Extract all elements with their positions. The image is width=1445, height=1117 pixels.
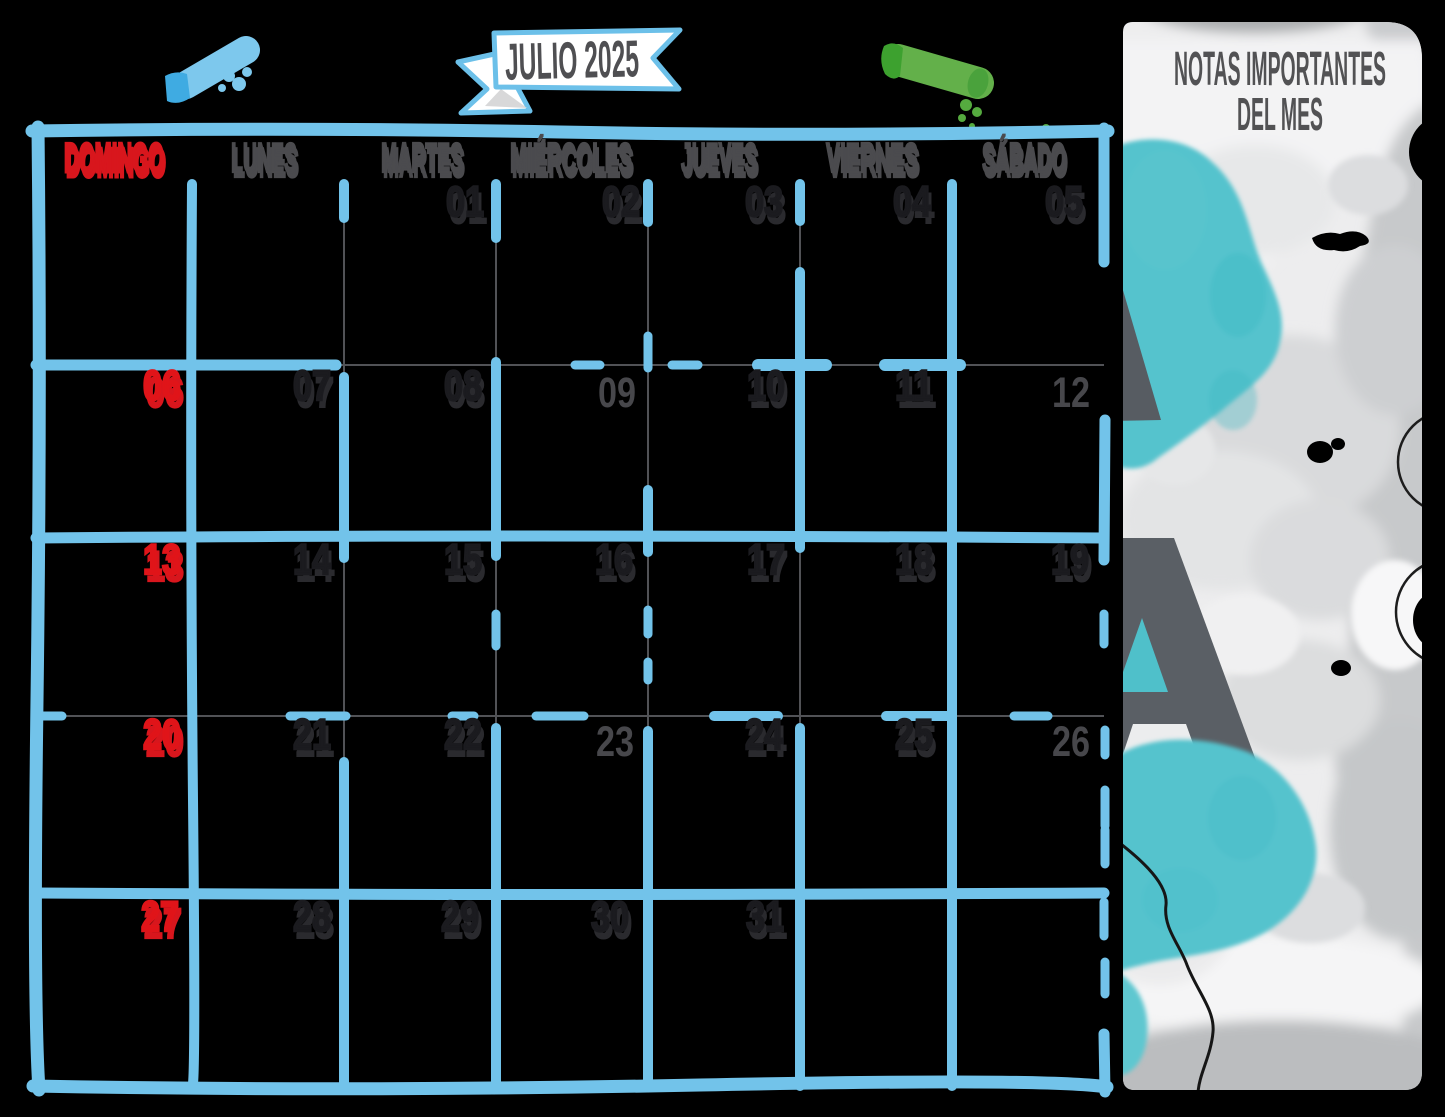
svg-text:VIERNES: VIERNES xyxy=(826,134,918,181)
svg-text:09: 09 xyxy=(598,369,636,417)
svg-text:13: 13 xyxy=(143,536,181,584)
svg-text:28: 28 xyxy=(293,893,331,941)
svg-text:21: 21 xyxy=(293,711,331,759)
svg-text:06: 06 xyxy=(143,362,181,410)
svg-text:DEL MES: DEL MES xyxy=(1237,88,1323,140)
svg-text:17: 17 xyxy=(747,536,785,584)
svg-text:15: 15 xyxy=(444,536,482,584)
svg-text:JULIO 2025: JULIO 2025 xyxy=(504,30,639,91)
svg-text:07: 07 xyxy=(293,362,331,410)
svg-text:16: 16 xyxy=(595,536,633,584)
svg-text:23: 23 xyxy=(596,718,634,766)
svg-text:DOMINGO: DOMINGO xyxy=(64,134,164,181)
svg-text:30: 30 xyxy=(591,893,629,941)
svg-text:03: 03 xyxy=(745,178,783,226)
svg-text:31: 31 xyxy=(746,893,784,941)
svg-text:14: 14 xyxy=(293,536,331,584)
svg-text:27: 27 xyxy=(141,893,179,941)
svg-text:04: 04 xyxy=(893,178,931,226)
svg-text:25: 25 xyxy=(895,711,933,759)
svg-text:18: 18 xyxy=(895,536,933,584)
svg-text:08: 08 xyxy=(444,362,482,410)
svg-text:24: 24 xyxy=(745,711,783,759)
svg-text:01: 01 xyxy=(446,178,484,226)
svg-text:22: 22 xyxy=(444,711,482,759)
svg-text:02: 02 xyxy=(602,178,640,226)
svg-text:20: 20 xyxy=(143,711,181,759)
svg-text:12: 12 xyxy=(1052,369,1090,417)
svg-text:MARTES: MARTES xyxy=(381,134,463,181)
svg-text:10: 10 xyxy=(747,362,785,410)
svg-text:LUNES: LUNES xyxy=(231,134,297,181)
svg-text:29: 29 xyxy=(441,893,479,941)
svg-text:JUEVES: JUEVES xyxy=(681,134,757,181)
svg-text:19: 19 xyxy=(1051,536,1089,584)
svg-text:26: 26 xyxy=(1052,718,1090,766)
svg-text:SÁBADO: SÁBADO xyxy=(982,134,1066,181)
svg-text:MIÉRCOLES: MIÉRCOLES xyxy=(510,134,632,181)
svg-text:11: 11 xyxy=(895,362,933,410)
svg-text:05: 05 xyxy=(1045,178,1083,226)
